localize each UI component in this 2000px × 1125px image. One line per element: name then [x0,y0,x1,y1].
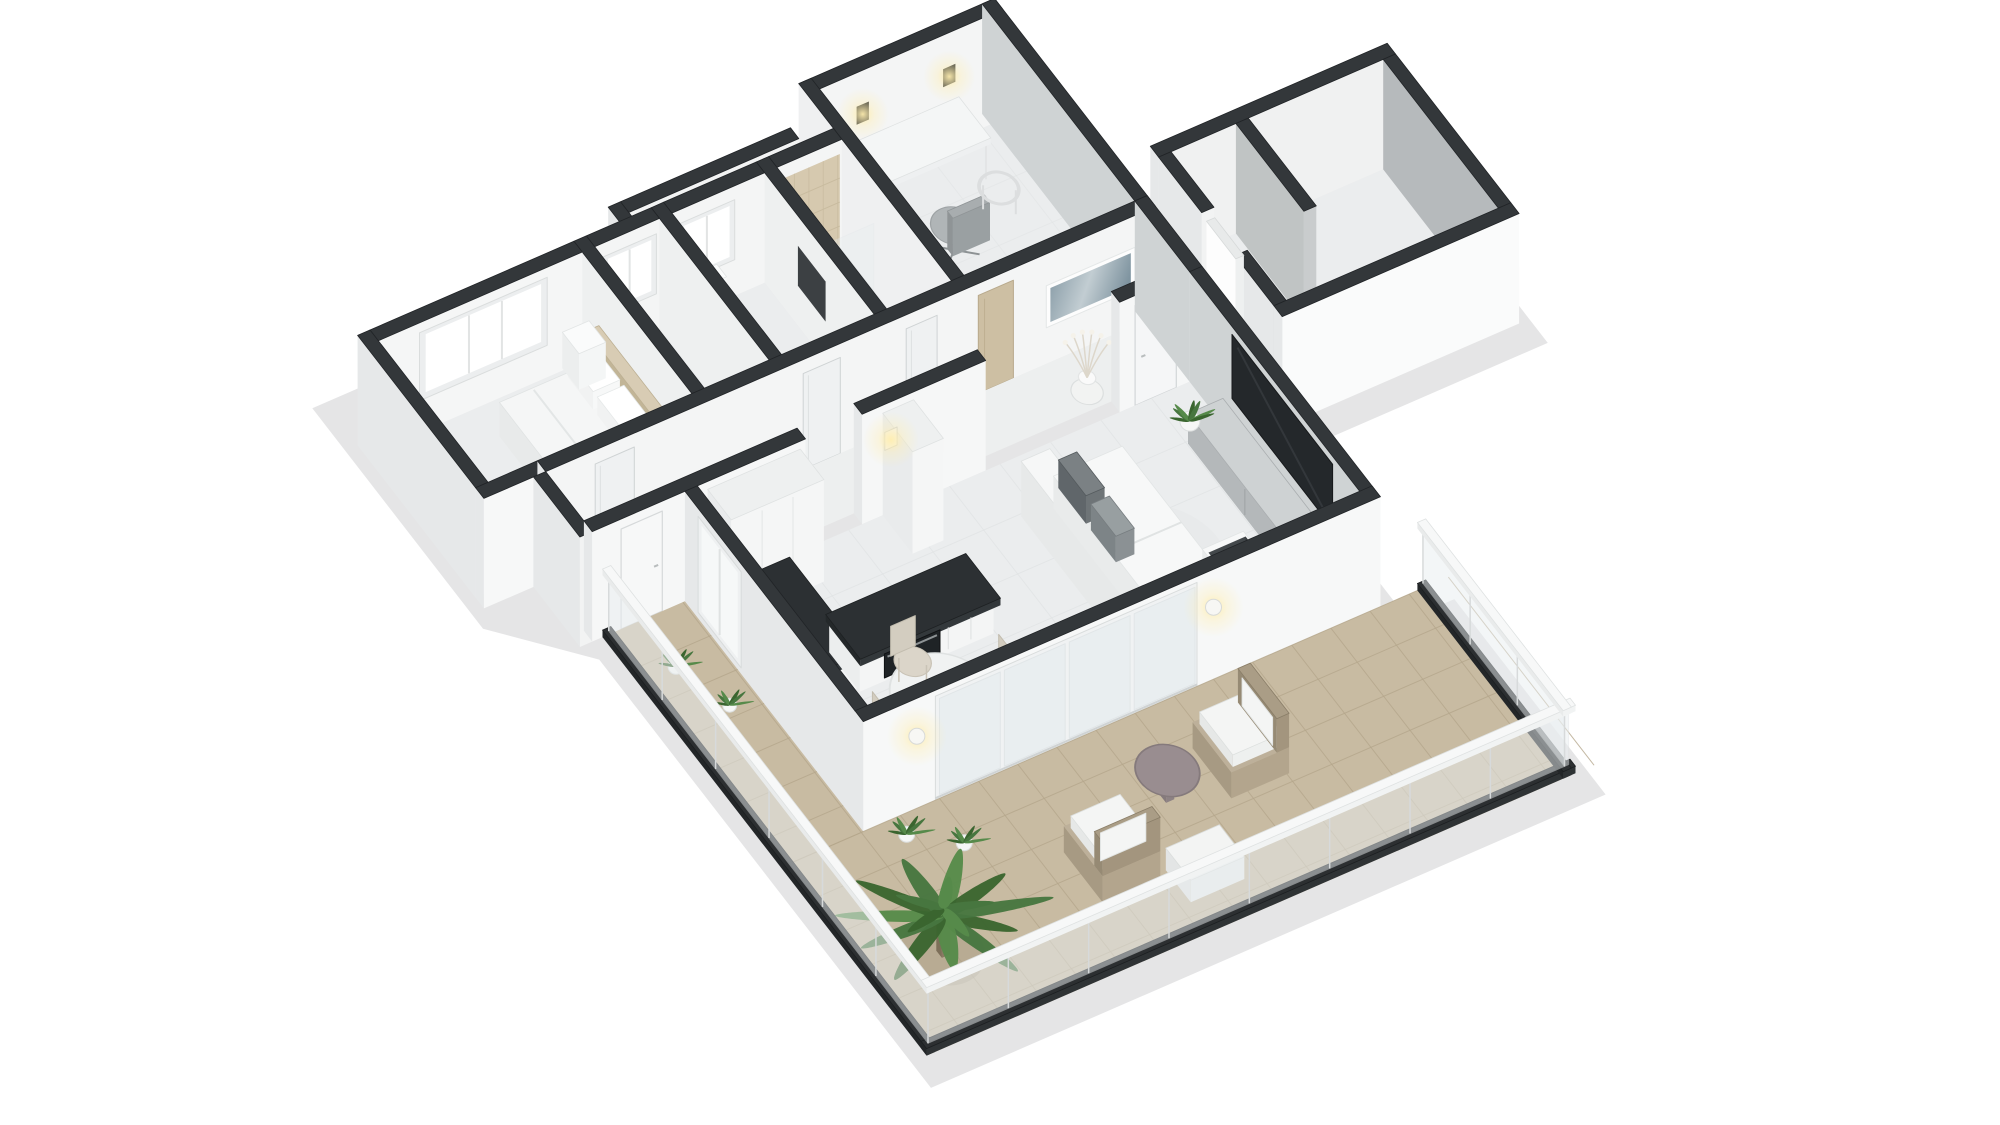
wall-sconce [863,412,919,468]
exterior-lamp [887,706,947,766]
door-bathroom [803,357,840,469]
exterior-lamp [1184,577,1244,637]
floorplan-stage [0,0,2000,1125]
floorplan-3d-view [0,0,2000,1125]
